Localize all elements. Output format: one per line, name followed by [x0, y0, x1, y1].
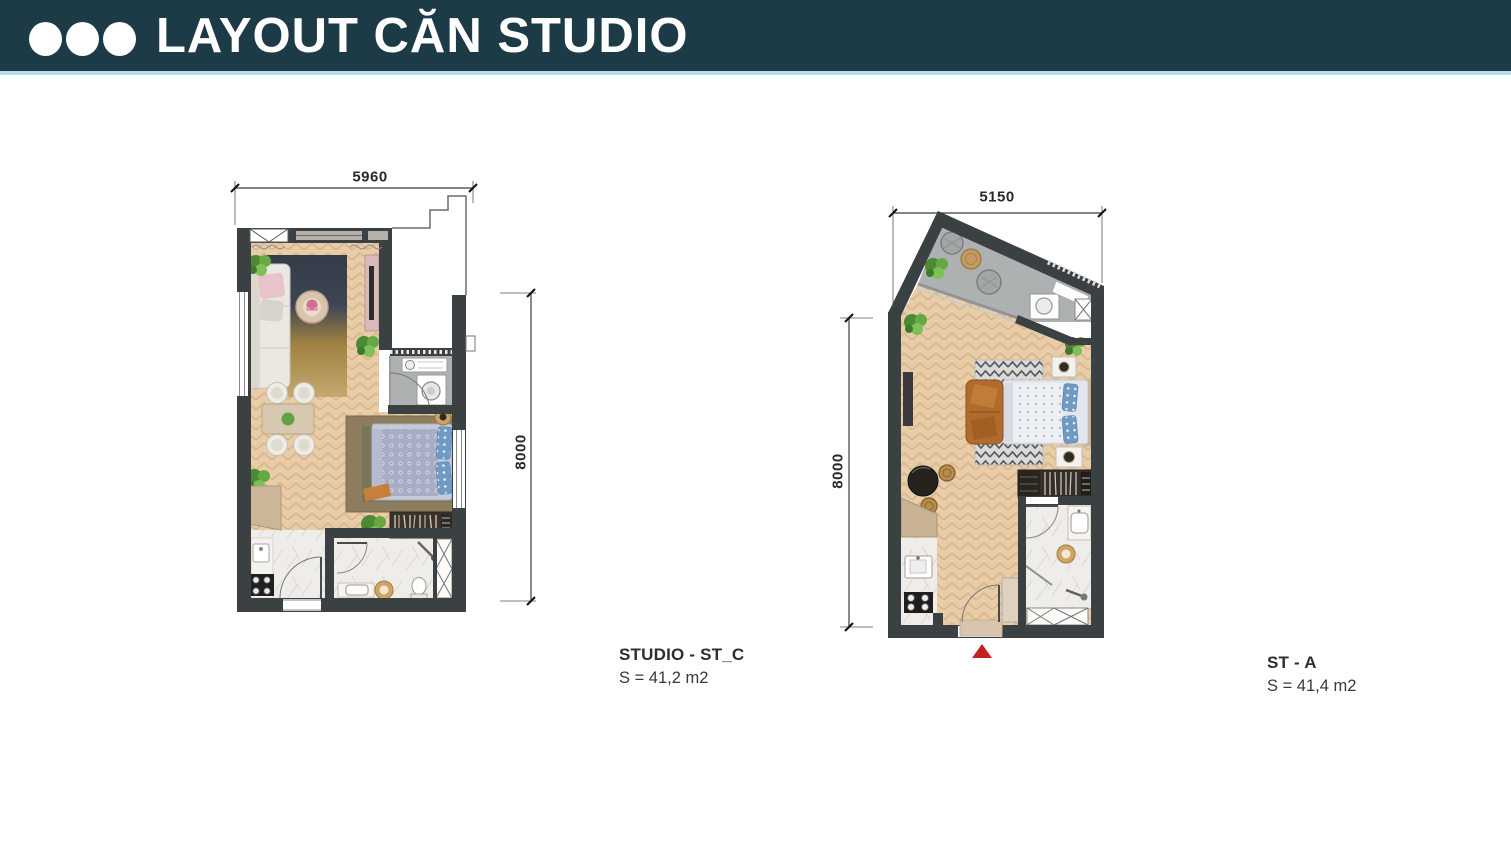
page-title: LAYOUT CĂN STUDIO — [156, 0, 688, 71]
dimension-label-height-st-c: 8000 — [513, 434, 530, 469]
plan-label-st-a: ST - A S = 41,4 m2 — [1267, 653, 1356, 696]
entrance-arrow-icon — [972, 644, 992, 658]
floorplan-st-a — [820, 175, 1120, 670]
floorplan-st-c — [225, 155, 545, 655]
plan-label-st-c: STUDIO - ST_C S = 41,2 m2 — [619, 645, 744, 688]
header-dot-icon — [103, 22, 136, 56]
sofa — [966, 380, 1003, 444]
plan-name: STUDIO - ST_C — [619, 645, 744, 665]
plan-area: S = 41,4 m2 — [1267, 677, 1356, 696]
bathroom-door-gap — [1026, 497, 1058, 504]
dimension-label-height-st-a: 8000 — [830, 453, 847, 488]
tv-console — [365, 255, 379, 331]
plan-area: S = 41,2 m2 — [619, 669, 744, 688]
closet — [1018, 470, 1091, 497]
header: LAYOUT CĂN STUDIO — [0, 0, 1511, 75]
shoe-cabinet — [1002, 578, 1020, 622]
dimension-label-width-st-a: 5150 — [979, 189, 1014, 206]
header-dot-icon — [29, 22, 62, 56]
sofa — [248, 264, 290, 388]
coffee-table — [296, 291, 328, 323]
tv-panel — [903, 372, 913, 426]
bed — [346, 409, 462, 512]
plan-name: ST - A — [1267, 653, 1356, 673]
header-dot-icon — [66, 22, 99, 56]
dimension-label-width-st-c: 5960 — [352, 169, 387, 186]
wardrobe — [436, 539, 452, 598]
